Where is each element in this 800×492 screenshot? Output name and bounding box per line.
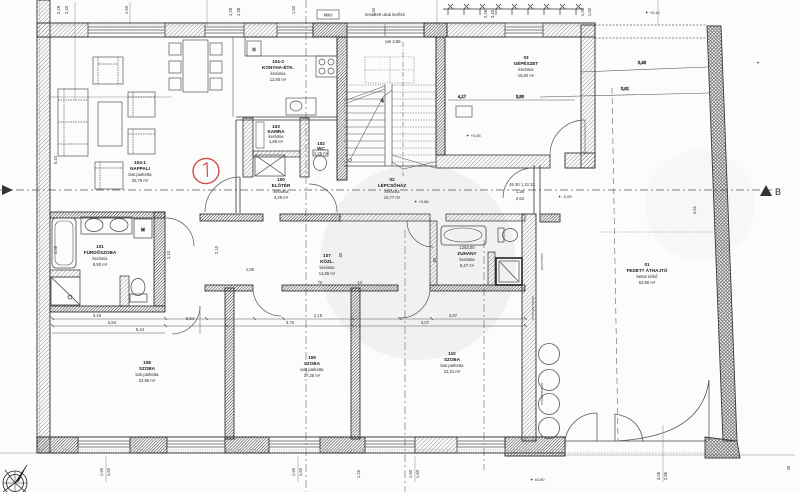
svg-text:15,60 m²: 15,60 m² bbox=[518, 73, 535, 78]
svg-text:1,50: 1,50 bbox=[408, 469, 413, 478]
svg-text:3,07: 3,07 bbox=[421, 320, 430, 325]
svg-text:2,48: 2,48 bbox=[483, 9, 488, 18]
svg-text:3,80: 3,80 bbox=[516, 94, 525, 99]
svg-text:2,63: 2,63 bbox=[516, 196, 525, 201]
svg-text:17,25 m²: 17,25 m² bbox=[304, 373, 321, 378]
svg-text:✦ +0,05: ✦ +0,05 bbox=[466, 133, 481, 138]
svg-text:ZUHANY: ZUHANY bbox=[457, 251, 476, 256]
svg-text:kerékpár tároló: kerékpár tároló bbox=[531, 296, 535, 320]
svg-text:lam.parketta: lam.parketta bbox=[300, 367, 324, 372]
svg-text:4,61: 4,61 bbox=[692, 205, 697, 214]
svg-text:3,48: 3,48 bbox=[638, 60, 647, 65]
svg-text:10: 10 bbox=[358, 280, 363, 285]
svg-text:kerámia: kerámia bbox=[271, 71, 287, 76]
svg-text:pormentes: pormentes bbox=[540, 253, 544, 270]
svg-text:107: 107 bbox=[323, 253, 331, 258]
svg-text:SZOBA: SZOBA bbox=[304, 361, 321, 366]
svg-text:2,49: 2,49 bbox=[56, 5, 61, 14]
svg-text:1,25 m²: 1,25 m² bbox=[314, 151, 329, 156]
svg-text:4,29 m²: 4,29 m² bbox=[274, 195, 289, 200]
svg-text:2,96: 2,96 bbox=[663, 471, 668, 480]
svg-text:kerámia: kerámia bbox=[93, 256, 109, 261]
svg-text:100: 100 bbox=[277, 177, 285, 182]
svg-text:22,31 m²: 22,31 m² bbox=[444, 369, 461, 374]
svg-text:5,44: 5,44 bbox=[136, 327, 145, 332]
svg-text:lam.parketta: lam.parketta bbox=[128, 172, 152, 177]
svg-text:3,61: 3,61 bbox=[621, 86, 630, 91]
svg-text:✦ -0,09: ✦ -0,09 bbox=[558, 194, 572, 199]
svg-text:Mikó: Mikó bbox=[324, 13, 334, 18]
svg-text:1,60: 1,60 bbox=[298, 467, 303, 476]
svg-text:14,86 m²: 14,86 m² bbox=[319, 271, 336, 276]
svg-text:3,75: 3,75 bbox=[286, 320, 295, 325]
svg-text:4,17: 4,17 bbox=[458, 94, 467, 99]
svg-text:1,29: 1,29 bbox=[228, 7, 233, 16]
svg-text:M: M bbox=[141, 227, 145, 232]
svg-text:beton térkő: beton térkő bbox=[637, 274, 659, 279]
svg-text:kerámia: kerámia bbox=[274, 189, 290, 194]
svg-text:✦ +0,56: ✦ +0,56 bbox=[414, 199, 429, 204]
svg-text:lam.parketta: lam.parketta bbox=[440, 363, 464, 368]
svg-text:101: 101 bbox=[96, 244, 104, 249]
svg-text:01: 01 bbox=[644, 262, 650, 267]
svg-text:1,38: 1,38 bbox=[236, 7, 241, 16]
svg-text:62,90 m²: 62,90 m² bbox=[639, 280, 656, 285]
svg-text:76: 76 bbox=[318, 280, 323, 285]
svg-text:25,76 m²: 25,76 m² bbox=[132, 178, 149, 183]
svg-text:4,08: 4,08 bbox=[53, 245, 58, 254]
svg-text:45 30 1,10 32: 45 30 1,10 32 bbox=[509, 182, 535, 187]
svg-text:✦: ✦ bbox=[756, 60, 760, 65]
svg-text:kerámia: kerámia bbox=[460, 257, 476, 262]
svg-text:hulladéktároló: hulladéktároló bbox=[540, 383, 544, 405]
svg-text:1,26: 1,26 bbox=[356, 469, 361, 478]
svg-text:✦ +0,10: ✦ +0,10 bbox=[645, 10, 660, 15]
svg-text:3,10: 3,10 bbox=[166, 250, 171, 259]
svg-text:104-1: 104-1 bbox=[134, 160, 146, 165]
svg-text:1,60: 1,60 bbox=[415, 469, 420, 478]
svg-text:1,80: 1,80 bbox=[246, 267, 255, 272]
svg-text:SZOBA: SZOBA bbox=[139, 366, 156, 371]
svg-text:5,84: 5,84 bbox=[186, 316, 195, 321]
svg-text:80: 80 bbox=[338, 252, 343, 257]
svg-text:FEDETT ÁTHAJTÓ: FEDETT ÁTHAJTÓ bbox=[627, 266, 668, 273]
svg-text:KÖZL.: KÖZL. bbox=[320, 258, 334, 264]
svg-text:pm 2,65: pm 2,65 bbox=[385, 39, 401, 44]
svg-text:10,77 m²: 10,77 m² bbox=[384, 195, 401, 200]
svg-text:108: 108 bbox=[143, 360, 151, 365]
svg-text:NAPPALI: NAPPALI bbox=[130, 166, 150, 171]
svg-text:2,15: 2,15 bbox=[314, 313, 323, 318]
svg-text:45: 45 bbox=[786, 465, 791, 470]
svg-text:109: 109 bbox=[308, 355, 316, 360]
svg-text:1,38: 1,38 bbox=[516, 189, 525, 194]
svg-text:LÉPCSŐHÁZ: LÉPCSŐHÁZ bbox=[378, 181, 407, 188]
svg-text:104-2: 104-2 bbox=[272, 59, 284, 64]
svg-text:1,50: 1,50 bbox=[99, 467, 104, 476]
svg-text:1,85 m²: 1,85 m² bbox=[269, 139, 284, 144]
svg-text:H: H bbox=[252, 47, 255, 52]
svg-text:kerámia: kerámia bbox=[385, 189, 401, 194]
svg-text:B: B bbox=[775, 187, 781, 197]
svg-text:110: 110 bbox=[448, 351, 456, 356]
svg-text:1,50: 1,50 bbox=[587, 7, 592, 16]
svg-text:1263,00: 1263,00 bbox=[459, 245, 475, 250]
svg-text:KONYHA-ÉTK.: KONYHA-ÉTK. bbox=[262, 63, 294, 70]
svg-text:2,10: 2,10 bbox=[214, 245, 219, 254]
svg-text:2,40: 2,40 bbox=[64, 5, 69, 14]
svg-text:FÜRDŐSZOBA: FÜRDŐSZOBA bbox=[84, 249, 117, 255]
svg-text:8,50 m²: 8,50 m² bbox=[93, 262, 108, 267]
svg-text:1,50: 1,50 bbox=[291, 467, 296, 476]
svg-text:3,19: 3,19 bbox=[93, 313, 102, 318]
svg-text:lam.parketta: lam.parketta bbox=[135, 372, 159, 377]
svg-text:80: 80 bbox=[432, 257, 437, 262]
svg-text:ELŐTÉR: ELŐTÉR bbox=[272, 181, 291, 188]
svg-text:5,84: 5,84 bbox=[108, 320, 117, 325]
svg-text:3,45: 3,45 bbox=[490, 9, 495, 18]
svg-text:kerámia: kerámia bbox=[320, 265, 336, 270]
svg-text:12,80 m²: 12,80 m² bbox=[270, 77, 287, 82]
svg-text:1,50: 1,50 bbox=[124, 5, 129, 14]
svg-text:1,50: 1,50 bbox=[291, 5, 296, 14]
svg-text:3,87: 3,87 bbox=[449, 313, 458, 318]
svg-text:1,60: 1,60 bbox=[106, 467, 111, 476]
svg-text:SZOBA: SZOBA bbox=[444, 357, 461, 362]
svg-text:5,40: 5,40 bbox=[53, 155, 58, 164]
svg-text:kerámia: kerámia bbox=[519, 67, 535, 72]
svg-text:GÉPÉSZET: GÉPÉSZET bbox=[514, 59, 539, 66]
svg-text:✦ ±0,00: ✦ ±0,00 bbox=[530, 477, 545, 482]
svg-text:3,06: 3,06 bbox=[656, 471, 661, 480]
svg-text:tervezett utcai kerítés: tervezett utcai kerítés bbox=[365, 12, 405, 17]
svg-text:5,47 m²: 5,47 m² bbox=[460, 263, 475, 268]
svg-text:02: 02 bbox=[389, 177, 395, 182]
svg-text:22,96 m²: 22,96 m² bbox=[139, 378, 156, 383]
svg-text:03: 03 bbox=[523, 55, 529, 60]
